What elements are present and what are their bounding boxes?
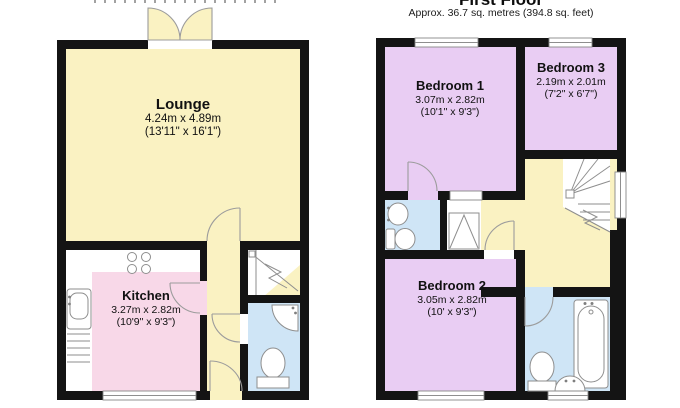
room-dim-imperial: (10'9" x 9'3"): [76, 316, 216, 328]
kitchen-label: Kitchen 3.27m x 2.82m (10'9" x 9'3"): [76, 289, 216, 328]
room-dim-metric: 3.07m x 2.82m: [380, 94, 520, 106]
room-dim-metric: 3.27m x 2.82m: [76, 304, 216, 316]
wc-door-opening: [240, 314, 248, 344]
stairs-window: [615, 172, 626, 218]
bedroom1-room: [385, 47, 516, 191]
room-name: Kitchen: [76, 289, 216, 304]
room-dim-metric: 3.05m x 2.82m: [382, 294, 522, 306]
lounge-label: Lounge 4.24m x 4.89m (13'11" x 16'1"): [93, 96, 273, 140]
room-name: Bedroom 3: [513, 61, 629, 76]
bathroom-door-opening: [525, 287, 553, 297]
bedroom1-window: [415, 38, 478, 47]
bedroom2-door-opening: [484, 250, 514, 259]
bedroom2-label: Bedroom 2 3.05m x 2.82m (10' x 9'3"): [382, 279, 522, 318]
shower-cubicle-icon: [449, 213, 479, 249]
room-name: Bedroom 2: [382, 279, 522, 294]
bedroom3-label: Bedroom 3 2.19m x 2.01m (7'2" x 6'7"): [513, 61, 629, 100]
ff-wall: [440, 200, 447, 252]
room-name: Lounge: [93, 96, 273, 113]
gf-wall: [248, 295, 300, 303]
room-dim-imperial: (10' x 9'3"): [382, 306, 522, 318]
bedroom2-window: [418, 391, 484, 400]
bathroom-toilet-icon: [528, 352, 556, 391]
staircase-first-icon: [563, 159, 610, 232]
bathtub-icon: [574, 300, 608, 388]
bedroom1-door-opening: [408, 191, 438, 200]
bedroom3-window: [549, 38, 592, 47]
first-floor-subtitle: Approx. 36.7 sq. metres (394.8 sq. feet): [350, 7, 652, 19]
shower-basin-icon: [387, 203, 408, 225]
room-dim-metric: 2.19m x 2.01m: [513, 76, 629, 88]
staircase-ground-icon: [248, 250, 300, 297]
room-dim-imperial: (13'11" x 16'1"): [93, 126, 273, 139]
ground-floor-header-fragment: [94, 0, 276, 3]
french-door-opening: [148, 40, 212, 49]
gf-wall: [66, 241, 300, 250]
lounge-door-opening: [207, 241, 240, 250]
room-dim-imperial: (10'1" x 9'3"): [380, 106, 520, 118]
shower-room-door-opening: [450, 191, 482, 200]
ff-wall: [610, 230, 626, 400]
ff-wall: [516, 150, 626, 159]
room-dim-metric: 4.24m x 4.89m: [93, 113, 273, 126]
ff-wall: [376, 191, 516, 200]
room-name: Bedroom 1: [380, 79, 520, 94]
ff-wall: [516, 250, 525, 400]
bedroom1-label: Bedroom 1 3.07m x 2.82m (10'1" x 9'3"): [380, 79, 520, 118]
front-door-opening: [210, 391, 242, 400]
french-doors-icon: [148, 8, 212, 40]
room-dim-imperial: (7'2" x 6'7"): [513, 88, 629, 100]
bathroom-window: [548, 391, 588, 400]
shower-toilet-icon: [386, 229, 415, 250]
kitchen-window: [103, 391, 196, 400]
ground-floor-plan: [57, 8, 309, 400]
floorplan-image: First Floor Approx. 36.7 sq. metres (394…: [0, 0, 680, 408]
